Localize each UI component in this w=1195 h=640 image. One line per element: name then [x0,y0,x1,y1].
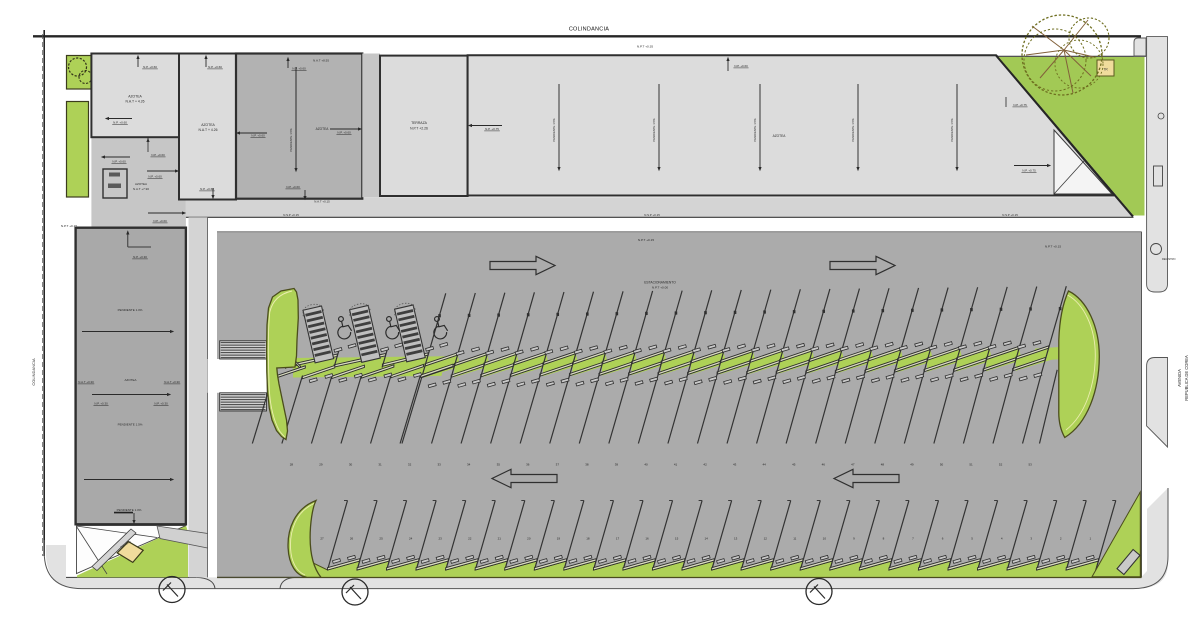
svg-text:22: 22 [468,537,472,541]
svg-text:17: 17 [616,537,620,541]
svg-text:N.P. +0.60: N.P. +0.60 [112,160,126,164]
svg-text:46: 46 [822,462,826,466]
svg-text:N.P. +0.60: N.P. +0.60 [208,65,222,69]
svg-text:27: 27 [320,537,324,541]
svg-text:PENDIENTE 1.5%: PENDIENTE 1.5% [851,118,855,142]
svg-text:47: 47 [851,462,855,466]
svg-text:REGISTRO: REGISTRO [1162,257,1176,261]
svg-text:PENDIENTE 1.5%: PENDIENTE 1.5% [753,118,757,142]
svg-text:14: 14 [704,537,708,541]
svg-text:N.P. +0.75: N.P. +0.75 [1022,169,1036,173]
svg-text:PENDIENTE 1.0%: PENDIENTE 1.0% [118,308,143,312]
svg-text:N.A.T + 4.26: N.A.T + 4.26 [125,100,144,104]
svg-text:45: 45 [792,462,796,466]
svg-text:AZOTEA: AZOTEA [201,123,215,127]
svg-text:34: 34 [467,462,471,466]
svg-text:12: 12 [764,537,768,541]
svg-text:36: 36 [526,462,530,466]
svg-text:AZOTEA: AZOTEA [124,378,136,382]
svg-text:N.A.T +8.55: N.A.T +8.55 [313,59,329,63]
svg-text:AZOTEA: AZOTEA [773,134,787,138]
svg-text:PENDIENTE 1.5%: PENDIENTE 1.5% [118,423,143,427]
svg-text:19: 19 [557,537,561,541]
svg-text:ESTACIONAMIENTO: ESTACIONAMIENTO [644,281,676,285]
svg-text:51: 51 [969,462,973,466]
svg-text:44: 44 [763,462,767,466]
svg-text:N.P. +0.60: N.P. +0.60 [143,65,157,69]
svg-text:41: 41 [674,462,678,466]
svg-text:21: 21 [498,537,502,541]
svg-text:15: 15 [675,537,679,541]
svg-text:N.P. +0.30: N.P. +0.30 [133,255,147,259]
svg-text:N.A.T +0.15: N.A.T +0.15 [314,200,330,204]
svg-text:N.P.T +0.35: N.P.T +0.35 [637,45,653,49]
svg-text:37: 37 [556,462,560,466]
svg-text:13: 13 [734,537,738,541]
svg-text:N.P. +0.60: N.P. +0.60 [151,153,165,157]
svg-text:N.S.P +0.15: N.S.P +0.15 [283,213,299,217]
svg-text:AVENIDA: AVENIDA [1177,369,1182,387]
svg-text:N.P. +0.75: N.P. +0.75 [485,127,499,131]
svg-text:TERRAZA: TERRAZA [411,121,428,125]
svg-text:N.P. +0.60: N.P. +0.60 [337,131,351,135]
svg-text:PENDIENTE 1.5%: PENDIENTE 1.5% [289,128,293,152]
svg-text:50: 50 [940,462,944,466]
svg-text:33: 33 [437,462,441,466]
svg-text:PENDIENTE 1.5%: PENDIENTE 1.5% [552,118,556,142]
svg-text:N.P. +0.30: N.P. +0.30 [154,402,168,406]
svg-text:N.P.T +0.15: N.P.T +0.15 [1045,245,1061,249]
svg-text:N.P. +0.60: N.P. +0.60 [292,67,306,71]
svg-text:N.A.T + 4.26: N.A.T + 4.26 [198,128,217,132]
svg-text:29: 29 [319,462,323,466]
svg-text:N.A.T +0.30: N.A.T +0.30 [78,380,94,384]
svg-text:PENDIENTE 1.0%: PENDIENTE 1.0% [117,508,142,512]
svg-text:40: 40 [644,462,648,466]
svg-text:N.A.T +7.90: N.A.T +7.90 [133,187,149,191]
svg-text:28: 28 [290,462,294,466]
svg-text:N.P. +0.60: N.P. +0.60 [251,134,265,138]
svg-text:AZOTEA: AZOTEA [316,127,330,131]
svg-text:N.P. +0.60: N.P. +0.60 [200,187,214,191]
svg-text:N.P.T +0.15: N.P.T +0.15 [638,238,654,242]
svg-text:N.P. +0.60: N.P. +0.60 [153,219,167,223]
svg-text:48: 48 [881,462,885,466]
svg-text:N.S.P +0.15: N.S.P +0.15 [1002,213,1018,217]
svg-text:23: 23 [439,537,443,541]
svg-text:N.S.P +0.15: N.S.P +0.15 [644,213,660,217]
svg-text:COLINDANCIA: COLINDANCIA [569,27,609,33]
svg-text:N.P.T +0.00: N.P.T +0.00 [652,285,668,289]
svg-text:35: 35 [497,462,501,466]
svg-text:REPUBLICA DE COREA: REPUBLICA DE COREA [1184,355,1189,401]
svg-text:N.P.T +2.26: N.P.T +2.26 [410,127,428,131]
svg-text:42: 42 [703,462,707,466]
svg-text:25: 25 [379,537,383,541]
svg-text:N.P. +0.60: N.P. +0.60 [113,121,127,125]
svg-text:43: 43 [733,462,737,466]
svg-text:PENDIENTE 1.5%: PENDIENTE 1.5% [652,118,656,142]
svg-text:32: 32 [408,462,412,466]
svg-text:TR: TR [1103,68,1108,72]
svg-text:11: 11 [793,537,796,541]
svg-text:N.A.T +0.30: N.A.T +0.30 [164,380,180,384]
svg-text:COLINDANCIA: COLINDANCIA [31,358,36,386]
svg-text:AZOTEA: AZOTEA [135,182,147,186]
svg-text:49: 49 [910,462,914,466]
svg-text:PENDIENTE 1.5%: PENDIENTE 1.5% [950,118,954,142]
svg-text:24: 24 [409,537,413,541]
svg-text:31: 31 [378,462,382,466]
svg-text:53: 53 [1028,462,1032,466]
svg-text:16: 16 [645,537,649,541]
svg-text:N.P. +0.60: N.P. +0.60 [286,185,300,189]
svg-text:20: 20 [527,537,531,541]
svg-text:30: 30 [349,462,353,466]
svg-text:26: 26 [350,537,354,541]
svg-text:39: 39 [615,462,619,466]
svg-text:N.P. +0.60: N.P. +0.60 [148,175,162,179]
svg-text:N.P. +0.75: N.P. +0.75 [1013,103,1027,107]
svg-text:N.P. +0.60: N.P. +0.60 [734,64,748,68]
svg-text:10: 10 [823,537,827,541]
svg-text:52: 52 [999,462,1003,466]
svg-text:N.P. +0.30: N.P. +0.30 [94,402,108,406]
svg-text:AZOTEA: AZOTEA [128,95,142,99]
svg-text:38: 38 [585,462,589,466]
svg-text:18: 18 [586,537,590,541]
